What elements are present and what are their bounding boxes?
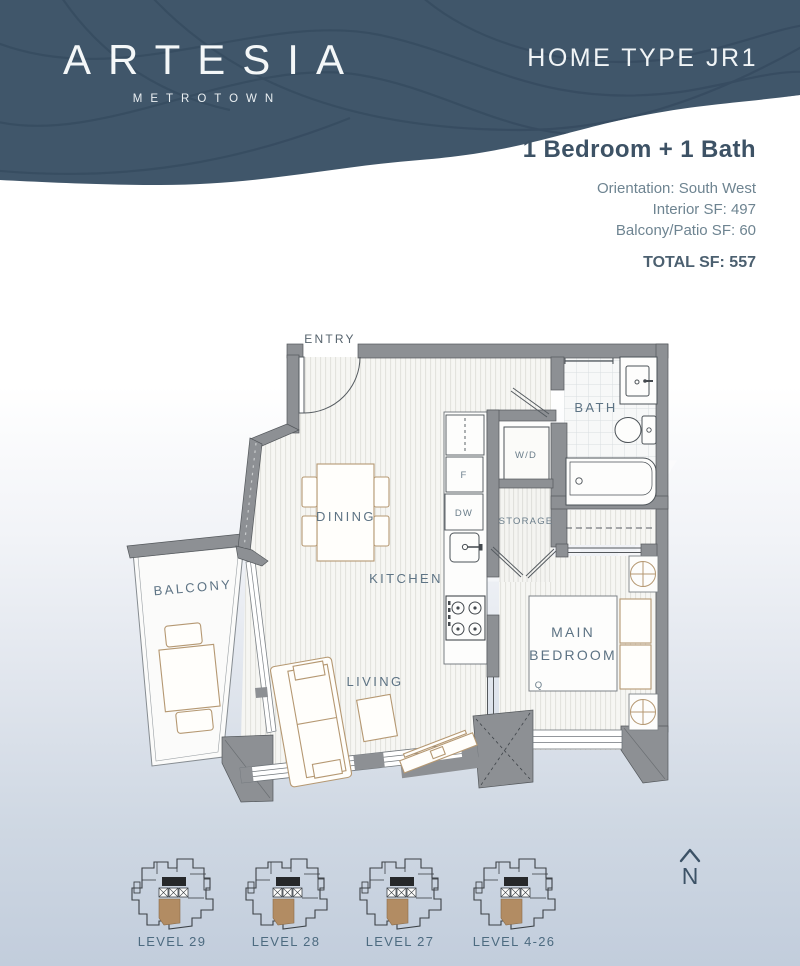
kitchen-counter (444, 412, 487, 664)
bay-pillar (473, 710, 533, 788)
key-plan-level-28: LEVEL 28 (246, 859, 327, 949)
unit-summary: 1 Bedroom + 1 Bath Orientation: South We… (523, 136, 756, 272)
key-plan-label: LEVEL 4-26 (473, 934, 556, 949)
bed-size-label: Q (535, 680, 544, 691)
north-arrow-letter: N (682, 863, 699, 889)
key-plan-label: LEVEL 27 (366, 934, 434, 949)
brand-logo-subtitle: METROTOWN (46, 93, 360, 105)
north-arrow-chevron (681, 850, 699, 861)
main-bedroom-label-line1: MAIN (551, 624, 595, 640)
se-corner-column (621, 726, 668, 783)
brand-logo-title: ARTESIA (46, 36, 360, 84)
bath-label: BATH (574, 400, 617, 415)
wd-label: W/D (515, 450, 537, 461)
toilet (615, 416, 656, 444)
key-plan-level-27: LEVEL 27 (360, 859, 441, 949)
key-plan-level-4-26: LEVEL 4-26 (473, 859, 556, 949)
bathtub (566, 458, 656, 505)
storage-label: STORAGE (499, 516, 554, 527)
home-type-title: HOME TYPE JR1 (527, 44, 758, 73)
entry-label: ENTRY (304, 332, 355, 346)
unit-interior-sf: Interior SF: 497 (523, 199, 756, 220)
dining-label: DINING (316, 509, 376, 524)
unit-headline: 1 Bedroom + 1 Bath (523, 136, 756, 164)
north-arrow: N (681, 850, 699, 889)
fridge-label: F (460, 470, 467, 481)
key-plan-label: LEVEL 29 (138, 934, 206, 949)
unit-balcony-sf: Balcony/Patio SF: 60 (523, 220, 756, 241)
floor-plan: BALCONY (127, 332, 668, 802)
bedroom-window (533, 730, 622, 749)
key-plan-label: LEVEL 28 (252, 934, 320, 949)
key-plan-level-29: LEVEL 29 (132, 859, 213, 949)
side-table (357, 694, 398, 741)
unit-total-sf: TOTAL SF: 557 (523, 254, 756, 272)
brand-logo: ARTESIA METROTOWN (46, 36, 360, 105)
main-bedroom-label-line2: BEDROOM (529, 647, 617, 663)
living-label: LIVING (346, 674, 403, 689)
flyer-page: VANSKY 温哥华天空 BALCONY (0, 0, 800, 966)
storage-floor (499, 487, 553, 582)
unit-orientation: Orientation: South West (523, 178, 756, 199)
vanity-sink (620, 357, 657, 404)
dishwasher-label: DW (455, 508, 473, 519)
balcony: BALCONY (127, 534, 244, 766)
kitchen-label: KITCHEN (369, 571, 443, 586)
bed (529, 596, 617, 691)
